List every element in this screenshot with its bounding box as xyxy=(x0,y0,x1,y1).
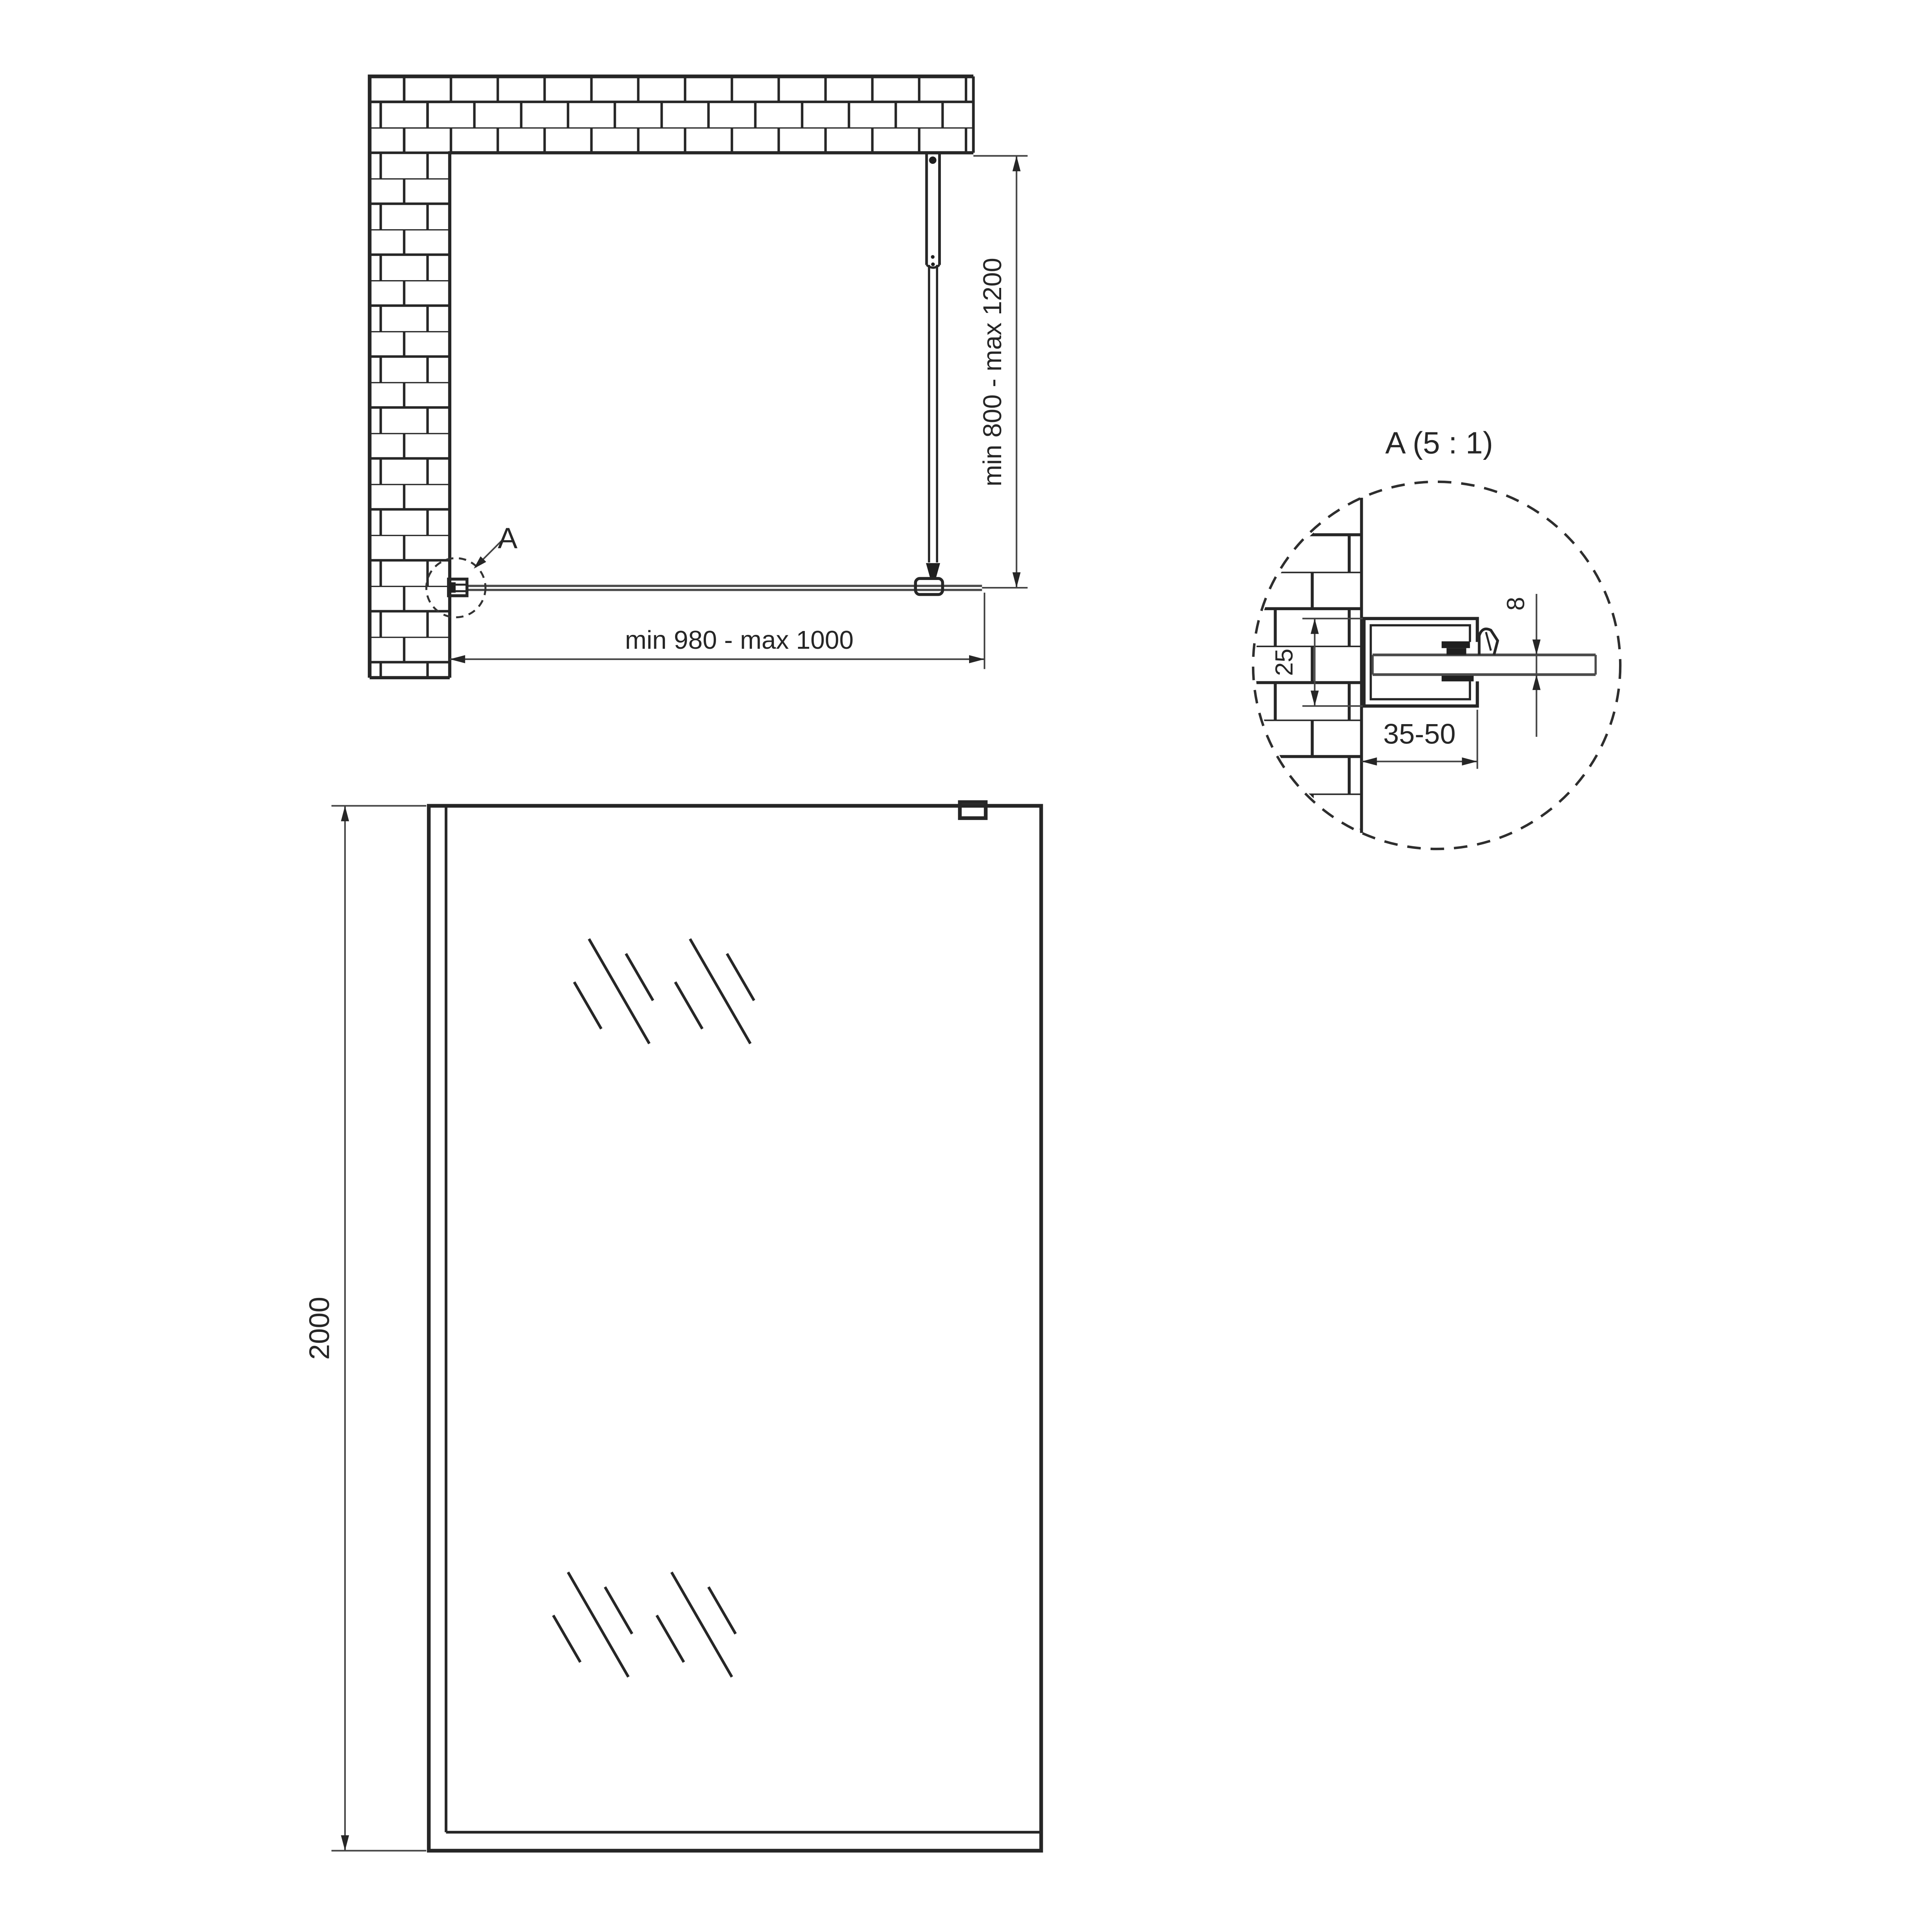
detail-dim3550-text: 35-50 xyxy=(1383,718,1456,750)
plan-bar-dim-arrow-down xyxy=(1012,572,1020,588)
plan-bar-glass-connector xyxy=(926,563,940,578)
plan-support-bar xyxy=(915,154,942,595)
detail-dim8-arrow-up xyxy=(1532,675,1541,690)
front-view: 2000 xyxy=(303,802,1041,1851)
technical-drawing-canvas: A min 800 - max 1200 xyxy=(0,0,1932,1932)
plan-top-wall-bricks xyxy=(370,77,974,153)
plan-bar-dim-arrow-up xyxy=(1012,156,1020,171)
detail-dim8-text: 8 xyxy=(1502,597,1530,611)
detail-view: A (5 : 1) 8 xyxy=(1251,425,1621,851)
plan-wall-outer-edge xyxy=(370,77,974,678)
detail-top-gasket-foot xyxy=(1447,648,1466,655)
drawing-sheet: A min 800 - max 1200 xyxy=(0,0,1932,1932)
detail-dim8-arrow-down xyxy=(1532,639,1541,655)
plan-bar-wall-mount xyxy=(929,156,936,164)
plan-wall-inner-face xyxy=(450,153,973,677)
front-height-dimension: 2000 xyxy=(303,806,426,1850)
front-height-arrow-up xyxy=(341,806,349,821)
plan-width-dim-text: min 980 - max 1000 xyxy=(625,626,854,655)
reflection-mark-top-right xyxy=(675,939,754,1044)
reflection-mark-top-left xyxy=(574,939,653,1044)
detail-top-gasket-bar xyxy=(1442,641,1470,648)
detail-dim3550-arrow-left xyxy=(1362,757,1377,765)
plan-view: A min 800 - max 1200 xyxy=(370,77,1028,678)
detail-bottom-gasket xyxy=(1442,676,1474,681)
front-glass-outline xyxy=(429,806,1041,1850)
detail-dim3550-arrow-right xyxy=(1462,757,1477,765)
reflection-mark-bottom-right xyxy=(657,1572,736,1677)
plan-width-dimension: min 980 - max 1000 xyxy=(450,593,985,669)
plan-detail-label: A xyxy=(498,522,517,555)
reflection-mark-bottom-left xyxy=(553,1572,632,1677)
front-height-dim-text: 2000 xyxy=(303,1297,335,1360)
detail-profile-depth-dimension: 35-50 xyxy=(1362,710,1478,769)
detail-title: A (5 : 1) xyxy=(1385,425,1493,460)
detail-profile-outer xyxy=(1364,619,1477,706)
detail-glass xyxy=(1372,655,1595,675)
plan-bar-dimension: min 800 - max 1200 xyxy=(973,156,1027,588)
plan-bar-dim-text: min 800 - max 1200 xyxy=(978,258,1007,486)
detail-profile-inner xyxy=(1371,625,1470,699)
detail-glass-thickness-dimension: 8 xyxy=(1502,594,1541,737)
front-height-arrow-down xyxy=(341,1835,349,1851)
detail-dim25-text: 25 xyxy=(1270,648,1298,676)
plan-width-dim-arrow-right xyxy=(969,655,985,663)
detail-seal-hook-slash xyxy=(1486,632,1491,651)
plan-left-wall-bricks xyxy=(370,77,450,678)
front-reflection-marks xyxy=(553,939,754,1677)
plan-bar-lock-dot-1 xyxy=(931,255,935,259)
plan-bar-lock-dot-2 xyxy=(931,262,935,266)
plan-width-dim-arrow-left xyxy=(450,655,465,663)
